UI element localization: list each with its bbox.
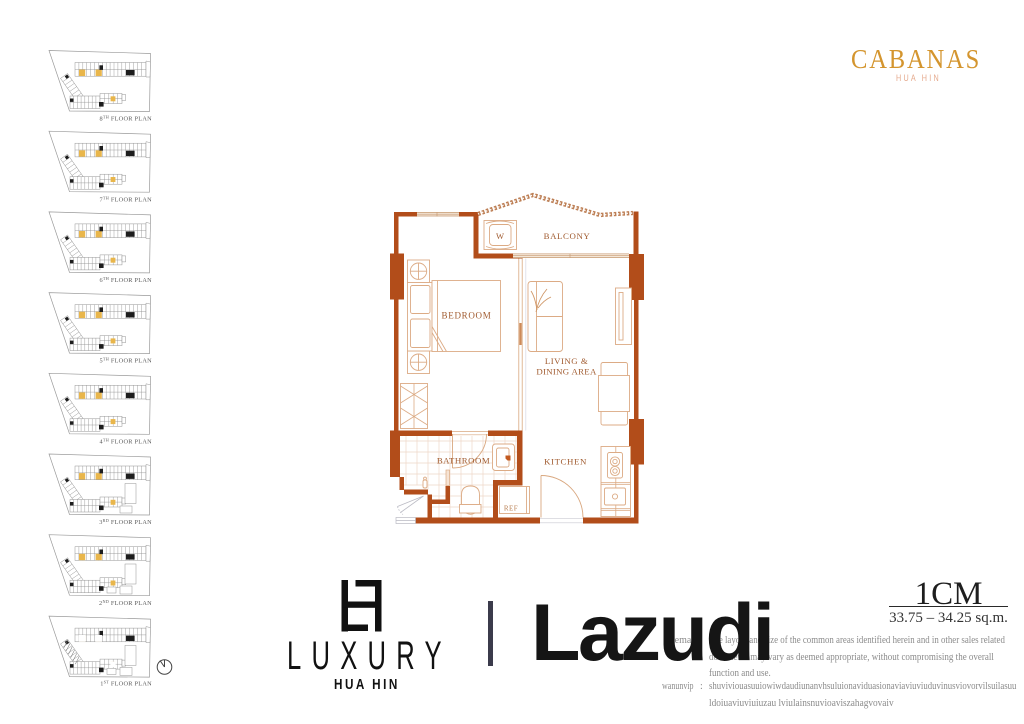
svg-text:4TH FLOOR PLAN: 4TH FLOOR PLAN — [100, 437, 153, 445]
svg-text:5TH FLOOR PLAN: 5TH FLOOR PLAN — [100, 357, 153, 365]
svg-text:BEDROOM: BEDROOM — [442, 311, 492, 321]
svg-text:2ND FLOOR PLAN: 2ND FLOOR PLAN — [99, 599, 152, 607]
svg-text:W: W — [496, 231, 504, 241]
svg-text:BATHROOM: BATHROOM — [437, 456, 490, 466]
svg-text:BALCONY: BALCONY — [544, 231, 591, 241]
svg-text:8TH FLOOR PLAN: 8TH FLOOR PLAN — [100, 115, 153, 123]
svg-text:1ST FLOOR PLAN: 1ST FLOOR PLAN — [100, 680, 152, 688]
svg-text:7TH FLOOR PLAN: 7TH FLOOR PLAN — [100, 195, 153, 203]
svg-text:DINING AREA: DINING AREA — [536, 367, 597, 377]
svg-text:REF: REF — [504, 505, 518, 513]
svg-text:KITCHEN: KITCHEN — [544, 457, 587, 467]
svg-text:6TH FLOOR PLAN: 6TH FLOOR PLAN — [100, 276, 153, 284]
svg-text:3RD FLOOR PLAN: 3RD FLOOR PLAN — [99, 518, 152, 526]
svg-text:LIVING &: LIVING & — [545, 356, 588, 366]
